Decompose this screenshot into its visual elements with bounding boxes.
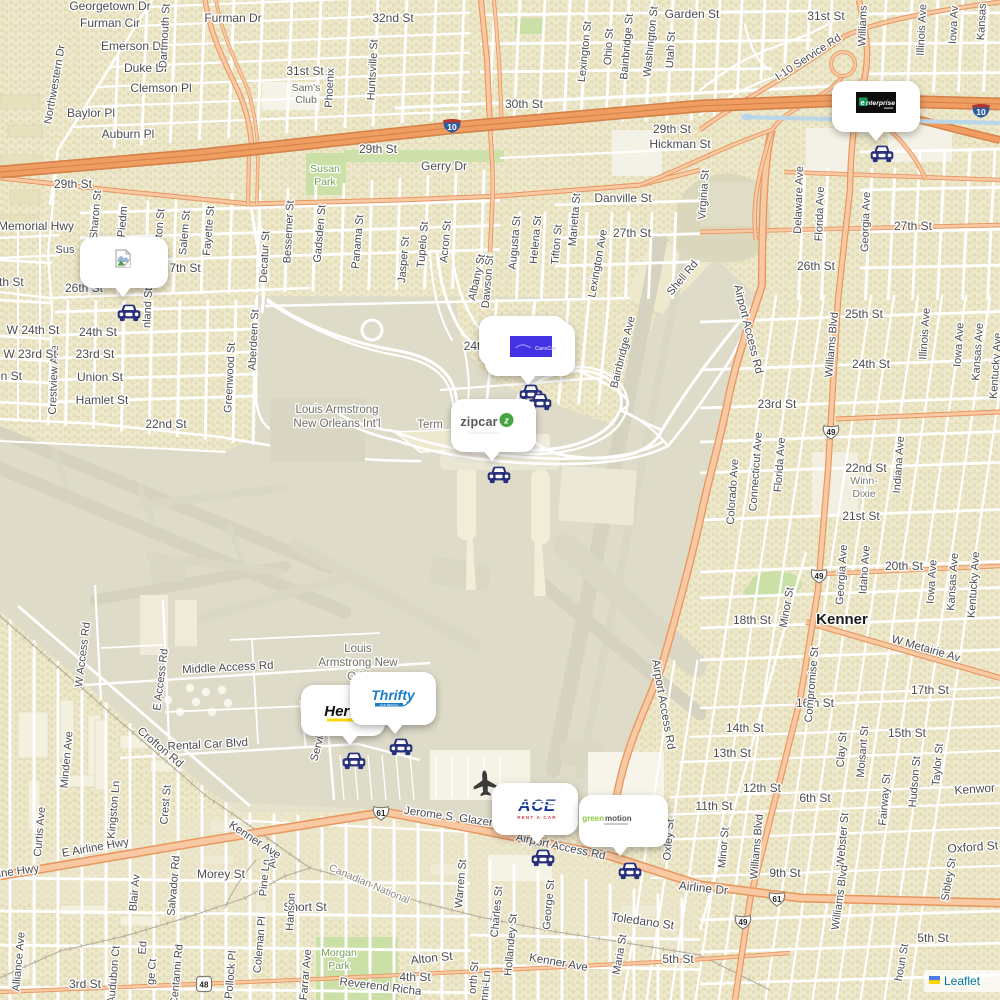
svg-text:W 24th St: W 24th St: [7, 323, 60, 337]
svg-text:Winn-: Winn-: [850, 475, 878, 487]
svg-text:green: green: [582, 814, 604, 823]
svg-text:49: 49: [815, 572, 824, 581]
svg-text:Hanson: Hanson: [284, 893, 298, 931]
svg-text:10: 10: [447, 122, 457, 132]
svg-text:Memorial Hwy: Memorial Hwy: [0, 219, 74, 233]
svg-text:Morgan: Morgan: [321, 947, 357, 959]
svg-text:49: 49: [739, 918, 748, 927]
svg-text:Florida Ave: Florida Ave: [813, 186, 827, 241]
svg-text:Kenner: Kenner: [816, 611, 868, 628]
svg-text:27th St: 27th St: [613, 226, 652, 240]
svg-text:14th St: 14th St: [726, 721, 765, 735]
svg-text:10: 10: [976, 107, 986, 117]
svg-text:6th St: 6th St: [799, 791, 831, 805]
svg-text:61: 61: [773, 895, 782, 904]
svg-text:Louis Armstrong: Louis Armstrong: [295, 404, 378, 416]
svg-text:New Orleans Int'l: New Orleans Int'l: [293, 418, 380, 430]
svg-text:CAR RENTAL: CAR RENTAL: [380, 703, 399, 707]
svg-text:Kenwor: Kenwor: [954, 781, 996, 798]
svg-text:31st St: 31st St: [286, 64, 324, 78]
svg-text:nni-Ln: nni-Ln: [479, 970, 494, 1000]
svg-text:49: 49: [827, 428, 836, 437]
svg-text:Union St: Union St: [77, 370, 124, 384]
svg-text:48: 48: [200, 981, 209, 990]
svg-text:30th St: 30th St: [505, 97, 544, 111]
svg-text:31st St: 31st St: [807, 9, 845, 23]
svg-text:Emerson Dr: Emerson Dr: [101, 39, 165, 53]
svg-text:Utah St: Utah St: [664, 31, 678, 68]
svg-text:Leaflet: Leaflet: [944, 974, 981, 988]
svg-text:zipcar: zipcar: [460, 415, 497, 429]
svg-text:RENT A CAR: RENT A CAR: [517, 815, 556, 820]
svg-text:Delaware Ave: Delaware Ave: [792, 166, 806, 234]
svg-text:Morey St: Morey St: [197, 867, 246, 881]
svg-text:Armstrong New: Armstrong New: [318, 657, 398, 669]
svg-text:9th St: 9th St: [769, 866, 801, 880]
svg-text:26th St: 26th St: [797, 259, 836, 273]
svg-text:Louis: Louis: [344, 643, 372, 655]
svg-text:Sam's: Sam's: [292, 82, 321, 94]
svg-text:22nd St: 22nd St: [145, 417, 187, 431]
svg-text:24t: 24t: [464, 339, 481, 353]
svg-text:Sus: Sus: [56, 244, 75, 256]
svg-text:Phoenix: Phoenix: [323, 67, 337, 108]
svg-text:Hickman St: Hickman St: [649, 137, 711, 151]
svg-text:e: e: [861, 98, 865, 107]
svg-text:17th St: 17th St: [911, 683, 950, 697]
svg-text:4th St: 4th St: [399, 970, 431, 984]
svg-text:Susan: Susan: [310, 163, 340, 175]
svg-text:on St: on St: [0, 369, 23, 383]
svg-text:7th St: 7th St: [0, 275, 24, 289]
svg-text:nland St: nland St: [141, 287, 155, 328]
svg-text:Ohio St: Ohio St: [602, 28, 616, 65]
svg-text:61: 61: [377, 809, 386, 818]
svg-text:22nd St: 22nd St: [845, 461, 887, 475]
svg-text:ge Ct: ge Ct: [145, 958, 159, 985]
svg-text:Georgetown Dr: Georgetown Dr: [69, 0, 150, 13]
svg-text:Term: Term: [417, 419, 443, 431]
svg-text:29th St: 29th St: [54, 177, 93, 191]
svg-text:24th St: 24th St: [852, 357, 891, 371]
svg-text:21st St: 21st St: [842, 509, 880, 523]
svg-text:27th St: 27th St: [894, 219, 933, 233]
svg-text:3rd St: 3rd St: [69, 977, 102, 991]
svg-text:23rd St: 23rd St: [76, 347, 115, 361]
svg-text:12th St: 12th St: [743, 781, 782, 795]
svg-text:W 23rd St: W 23rd St: [3, 347, 57, 361]
svg-text:25th St: 25th St: [845, 307, 884, 321]
svg-text:Furman Dr: Furman Dr: [204, 11, 261, 25]
svg-text:nterprise: nterprise: [866, 100, 895, 107]
svg-text:Ed: Ed: [136, 941, 149, 955]
svg-text:Williams: Williams: [856, 5, 869, 47]
svg-text:Auburn Pl: Auburn Pl: [102, 127, 155, 141]
svg-text:Georgia Ave: Georgia Ave: [859, 192, 873, 253]
svg-text:13th St: 13th St: [713, 746, 752, 760]
svg-text:32nd St: 32nd St: [372, 11, 414, 25]
svg-text:Park: Park: [314, 176, 336, 188]
svg-text:Gerry Dr: Gerry Dr: [421, 159, 467, 173]
svg-text:Iowa Av: Iowa Av: [947, 5, 961, 44]
svg-text:23rd St: 23rd St: [758, 397, 797, 411]
svg-text:Furman Cir: Furman Cir: [80, 16, 140, 30]
svg-text:Baylor Pl: Baylor Pl: [67, 106, 115, 120]
svg-text:Thrifty: Thrifty: [371, 687, 416, 703]
svg-text:motion: motion: [605, 814, 632, 823]
svg-text:7th St: 7th St: [169, 261, 201, 275]
svg-text:Garden St: Garden St: [665, 7, 720, 21]
svg-text:29th St: 29th St: [359, 142, 398, 156]
svg-text:Danville St: Danville St: [594, 191, 652, 205]
svg-text:Park: Park: [328, 960, 350, 972]
svg-text:29th St: 29th St: [653, 122, 692, 136]
svg-text:15th St: 15th St: [888, 726, 927, 740]
svg-text:24th St: 24th St: [79, 325, 118, 339]
svg-text:5th St: 5th St: [662, 952, 694, 966]
svg-text:18th St: 18th St: [733, 613, 772, 627]
svg-text:5th St: 5th St: [917, 931, 949, 945]
svg-text:CarsCar: CarsCar: [535, 346, 557, 352]
svg-text:Hamlet St: Hamlet St: [76, 393, 129, 407]
svg-text:Club: Club: [295, 94, 317, 106]
svg-text:20th St: 20th St: [885, 559, 924, 573]
svg-text:11th St: 11th St: [695, 799, 733, 813]
svg-text:z: z: [503, 416, 509, 426]
svg-text:Kansas: Kansas: [975, 3, 989, 41]
svg-text:Clemson Pl: Clemson Pl: [130, 81, 191, 95]
svg-text:Dixie: Dixie: [852, 488, 875, 500]
